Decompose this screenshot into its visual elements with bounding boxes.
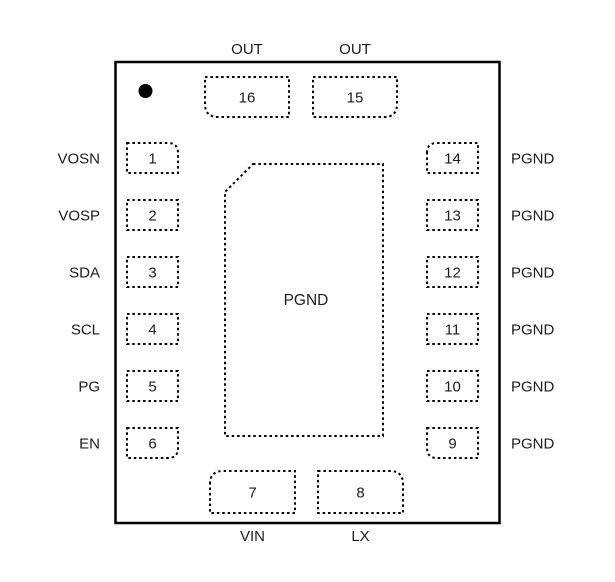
pin-9-signal-label: PGND <box>511 436 555 453</box>
pinout-diagram: PGND1VOSN2VOSP3SDA4SCL5PG6EN7VIN8LX9PGND… <box>0 0 615 582</box>
pin-1-number: 1 <box>148 151 156 168</box>
pin-14-number: 14 <box>444 151 461 168</box>
pin-9-number: 9 <box>448 436 456 453</box>
pin-16-number: 16 <box>239 90 256 107</box>
pin-11-number: 11 <box>445 322 461 339</box>
pin-11-signal-label: PGND <box>511 322 555 339</box>
pin-4-number: 4 <box>148 322 156 339</box>
pin-5-number: 5 <box>148 379 156 396</box>
pin-10-number: 10 <box>444 379 461 396</box>
pin-14-signal-label: PGND <box>511 151 555 168</box>
pin-13-number: 13 <box>444 208 461 225</box>
pin-6-number: 6 <box>148 436 156 453</box>
pin-2-number: 2 <box>148 208 156 225</box>
pin-6-signal-label: EN <box>79 436 100 453</box>
pin-12-number: 12 <box>444 265 461 282</box>
pin-10-signal-label: PGND <box>511 379 555 396</box>
pinout-svg: PGND1VOSN2VOSP3SDA4SCL5PG6EN7VIN8LX9PGND… <box>0 0 615 582</box>
pin-8-signal-label: LX <box>351 528 369 545</box>
pin-3-number: 3 <box>148 265 156 282</box>
pin-15-number: 15 <box>347 90 364 107</box>
pin-1-signal-label: VOSN <box>57 151 100 168</box>
center-pad-label: PGND <box>284 292 329 309</box>
pin-2-signal-label: VOSP <box>58 208 100 225</box>
pin-3-signal-label: SDA <box>69 265 100 282</box>
pin1-indicator-dot <box>139 84 153 98</box>
pin-13-signal-label: PGND <box>511 208 555 225</box>
pin-4-signal-label: SCL <box>71 322 100 339</box>
pin-7-number: 7 <box>248 485 256 502</box>
pin-15-signal-label: OUT <box>339 41 371 58</box>
pin-12-signal-label: PGND <box>511 265 555 282</box>
pin-16-signal-label: OUT <box>231 41 263 58</box>
pin-8-number: 8 <box>356 485 364 502</box>
pin-7-signal-label: VIN <box>240 528 265 545</box>
pin-5-signal-label: PG <box>78 379 100 396</box>
